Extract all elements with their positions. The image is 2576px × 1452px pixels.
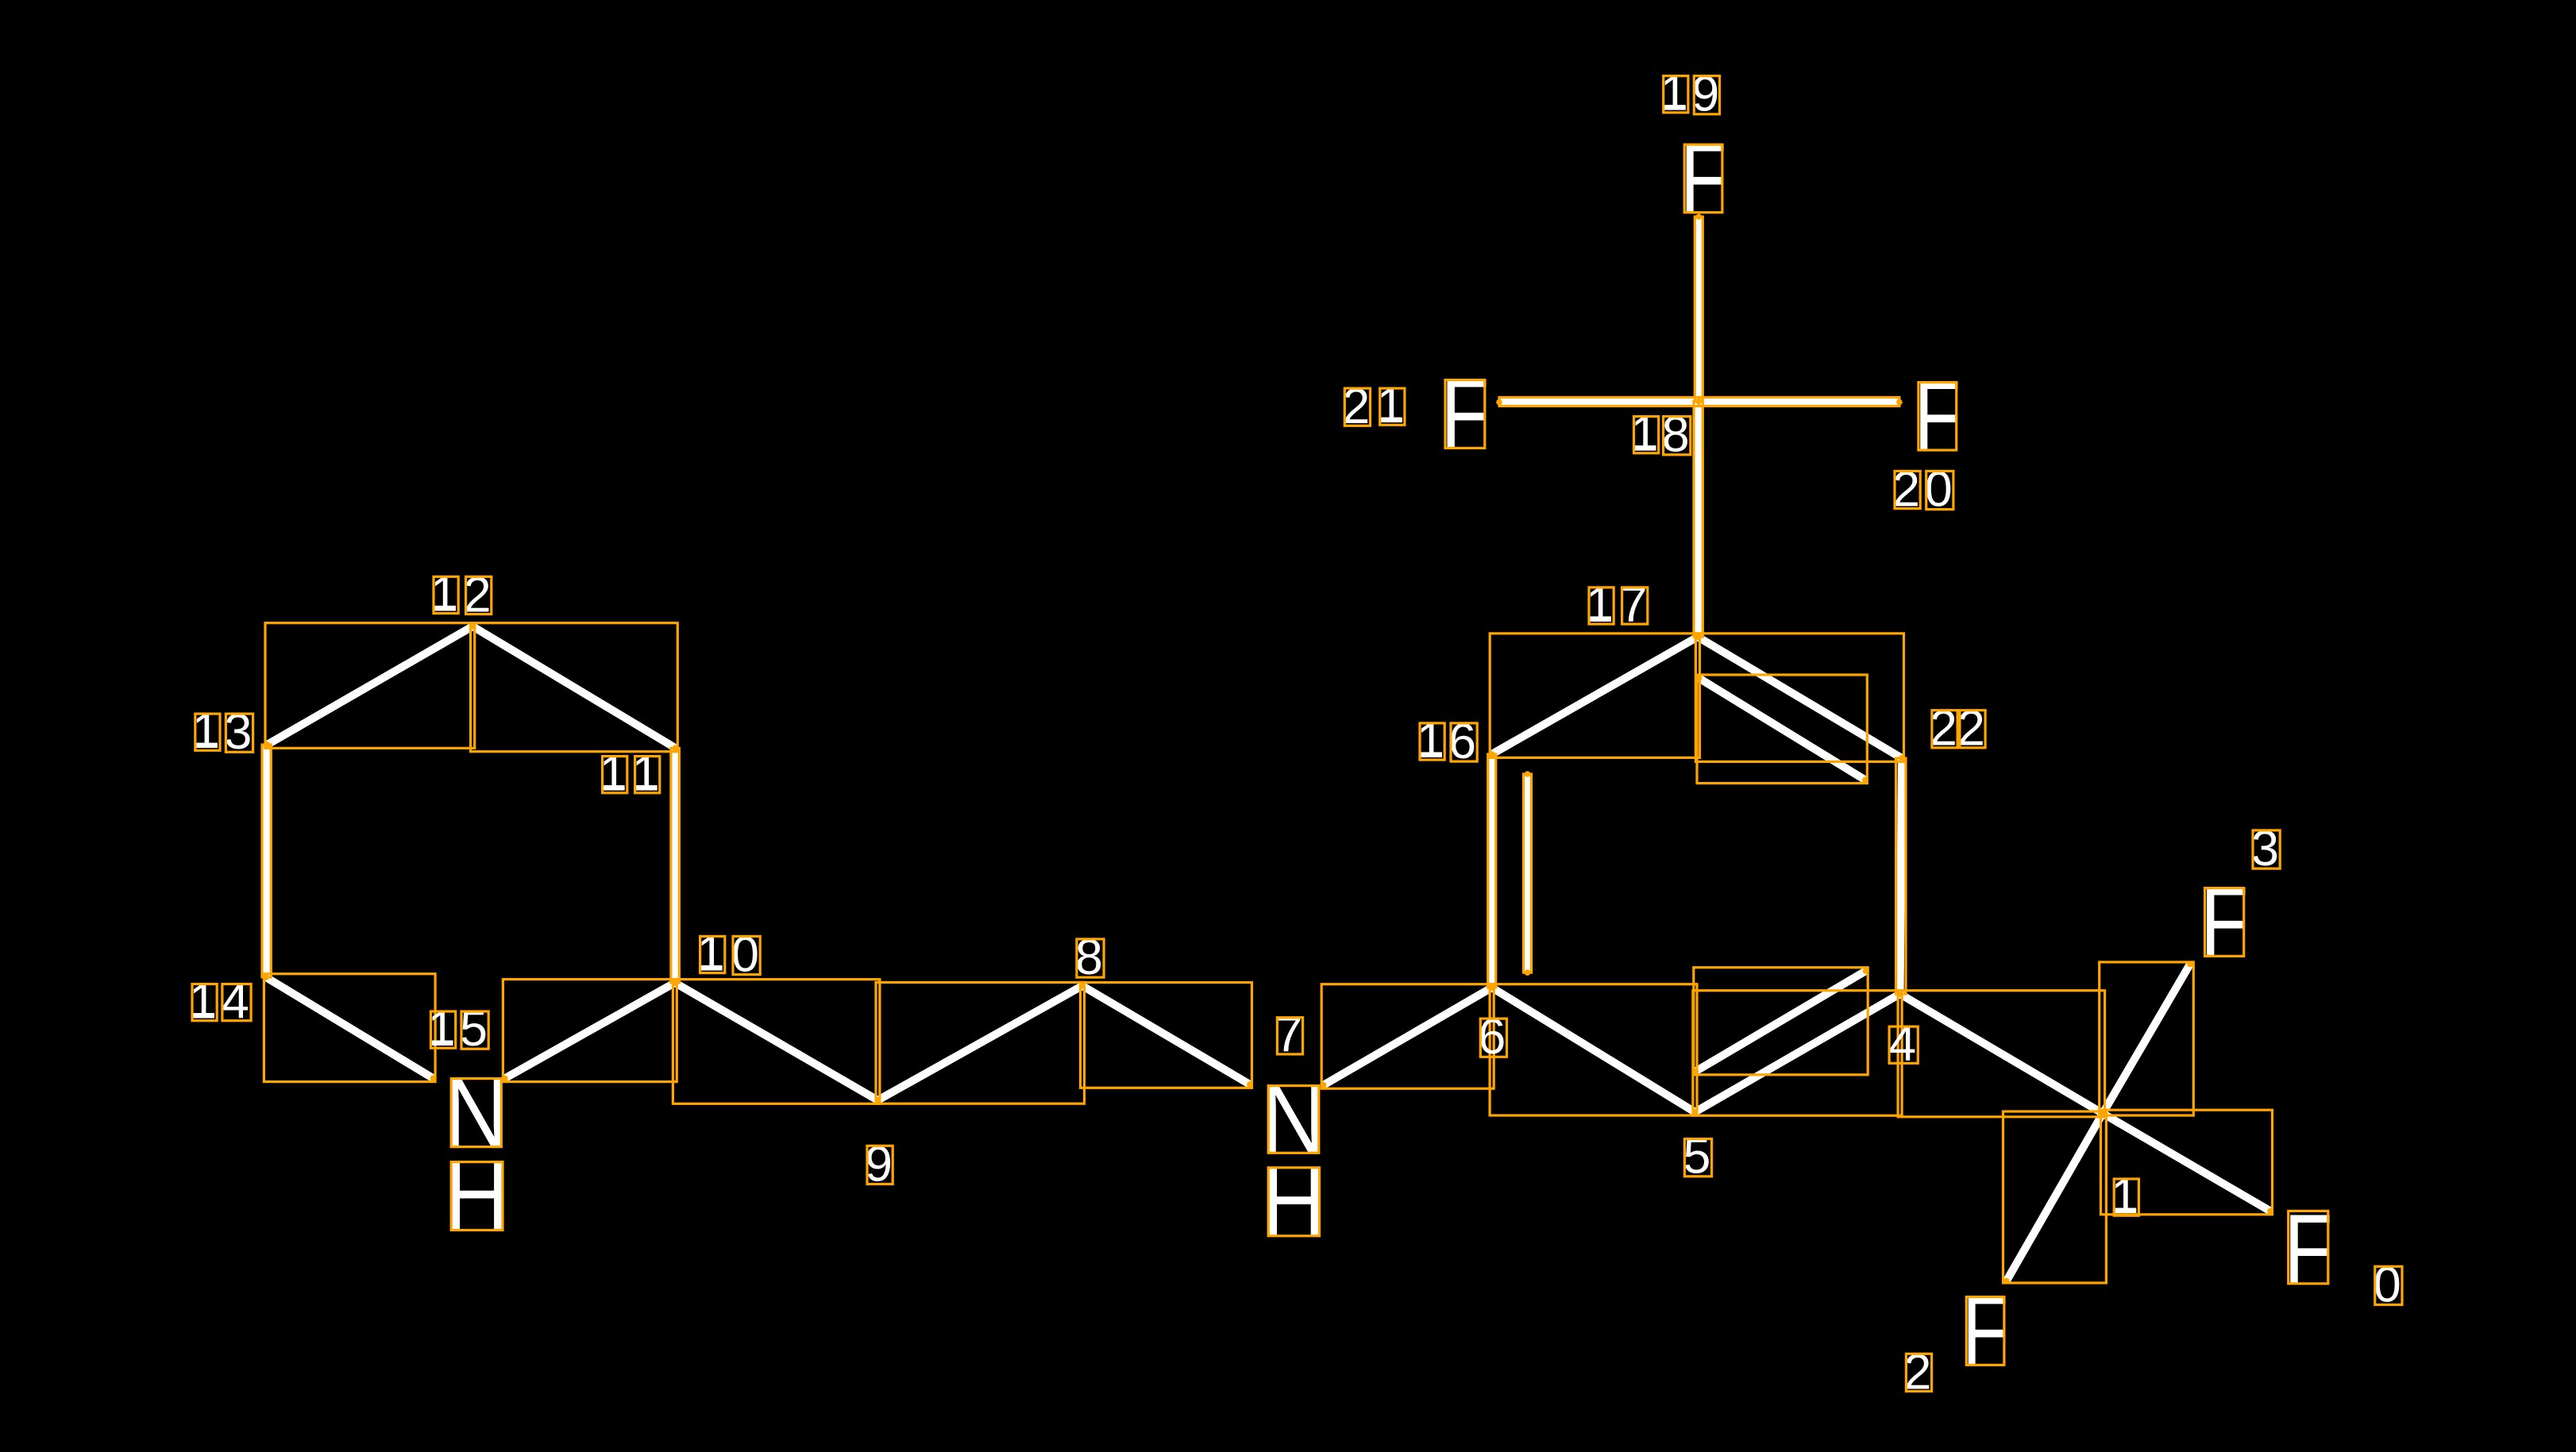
- svg-text:F: F: [1440, 359, 1489, 470]
- svg-text:F: F: [1962, 1275, 2009, 1386]
- svg-text:H: H: [444, 1140, 511, 1251]
- svg-text:F: F: [1680, 122, 1727, 233]
- svg-text:F: F: [2200, 866, 2248, 977]
- svg-text:F: F: [1914, 360, 1961, 472]
- svg-text:H: H: [1261, 1146, 1327, 1258]
